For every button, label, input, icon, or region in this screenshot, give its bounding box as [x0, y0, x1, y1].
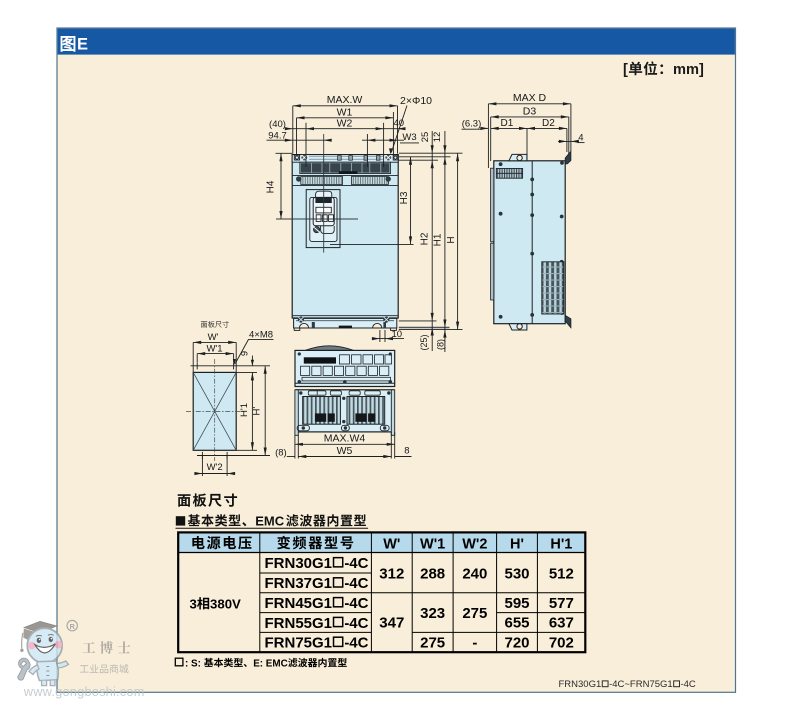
svg-text:(6.3): (6.3) [462, 119, 482, 130]
svg-text:W2: W2 [337, 117, 353, 129]
svg-text:323: 323 [420, 605, 445, 622]
svg-text:10: 10 [392, 329, 403, 340]
svg-text:288: 288 [420, 565, 445, 582]
svg-text:D3: D3 [523, 106, 537, 118]
svg-text:8: 8 [404, 446, 409, 457]
svg-text:4: 4 [578, 132, 583, 143]
svg-text:mm]: mm] [673, 62, 704, 78]
svg-text:W'1: W'1 [420, 537, 445, 553]
svg-text:H': H' [252, 407, 263, 416]
svg-text:(8): (8) [275, 447, 287, 458]
svg-text:www.gongboshi.com: www.gongboshi.com [23, 684, 145, 699]
svg-text:312: 312 [379, 565, 404, 582]
svg-text:655: 655 [504, 615, 529, 632]
svg-text:FRN75G1: FRN75G1 [265, 635, 333, 652]
svg-text:380V: 380V [210, 596, 241, 611]
svg-text:FRN30G1: FRN30G1 [265, 555, 333, 572]
svg-text:MAX.W4: MAX.W4 [324, 433, 366, 445]
svg-text:H'1: H'1 [239, 403, 250, 417]
svg-text:图: 图 [60, 35, 77, 54]
svg-text:MAX D: MAX D [513, 92, 547, 104]
svg-text:W5: W5 [337, 445, 353, 457]
svg-text:512: 512 [549, 565, 574, 582]
svg-text:3: 3 [190, 596, 197, 611]
svg-text:: S:: : S: [185, 658, 201, 669]
svg-text:FRN55G1: FRN55G1 [265, 615, 333, 632]
svg-text:EMC: EMC [255, 513, 285, 528]
svg-text:FRN37G1: FRN37G1 [265, 575, 333, 592]
svg-text:702: 702 [549, 635, 574, 652]
svg-text:H1: H1 [433, 233, 444, 246]
svg-text:12: 12 [432, 132, 443, 143]
svg-text:W': W' [208, 332, 219, 343]
svg-text:347: 347 [379, 615, 404, 632]
svg-text:-: - [472, 635, 477, 652]
svg-text:(8): (8) [435, 339, 445, 350]
svg-text:[: [ [623, 62, 628, 78]
svg-text:-4C: -4C [680, 679, 695, 690]
svg-text:25: 25 [420, 132, 431, 143]
svg-text:W'1: W'1 [206, 343, 222, 354]
svg-text:-4C: -4C [344, 555, 368, 572]
svg-text:720: 720 [504, 635, 529, 652]
svg-text:275: 275 [420, 635, 445, 652]
svg-text:-4C~FRN75G1: -4C~FRN75G1 [609, 679, 673, 690]
svg-text:-4C: -4C [344, 635, 368, 652]
svg-text:FRN30G1: FRN30G1 [559, 679, 602, 690]
svg-text:W': W' [383, 537, 400, 553]
svg-text:W3: W3 [402, 132, 416, 143]
svg-text:E: E [77, 36, 88, 54]
svg-text:W'2: W'2 [207, 462, 223, 473]
svg-text:H4: H4 [266, 180, 277, 193]
svg-text:H3: H3 [399, 191, 410, 204]
svg-text:(25): (25) [419, 334, 429, 350]
svg-text:FRN45G1: FRN45G1 [265, 595, 333, 612]
svg-text:94.7: 94.7 [268, 130, 287, 141]
svg-text:577: 577 [549, 595, 574, 612]
svg-text:637: 637 [549, 615, 574, 632]
svg-text:595: 595 [504, 595, 529, 612]
svg-text:-4C: -4C [344, 575, 368, 592]
svg-text:H'1: H'1 [550, 537, 572, 553]
svg-text:240: 240 [462, 565, 487, 582]
svg-text:2×Φ10: 2×Φ10 [400, 95, 432, 107]
svg-text:MAX.W: MAX.W [327, 94, 363, 106]
svg-text:9: 9 [240, 351, 250, 356]
svg-text:W'2: W'2 [462, 537, 487, 553]
svg-text:4×M8: 4×M8 [249, 329, 273, 340]
svg-text:H2: H2 [420, 232, 431, 245]
svg-text:E: EMC: E: EMC [253, 658, 288, 669]
svg-text:D1: D1 [501, 118, 514, 129]
svg-text:275: 275 [462, 605, 487, 622]
svg-text:(40): (40) [269, 119, 286, 130]
svg-text:530: 530 [504, 565, 529, 582]
svg-text:-4C: -4C [344, 595, 368, 612]
svg-text:D2: D2 [542, 118, 555, 129]
svg-text:H: H [446, 236, 457, 243]
svg-text:H': H' [510, 537, 524, 553]
svg-text:-4C: -4C [344, 615, 368, 632]
svg-text:R: R [69, 622, 75, 631]
